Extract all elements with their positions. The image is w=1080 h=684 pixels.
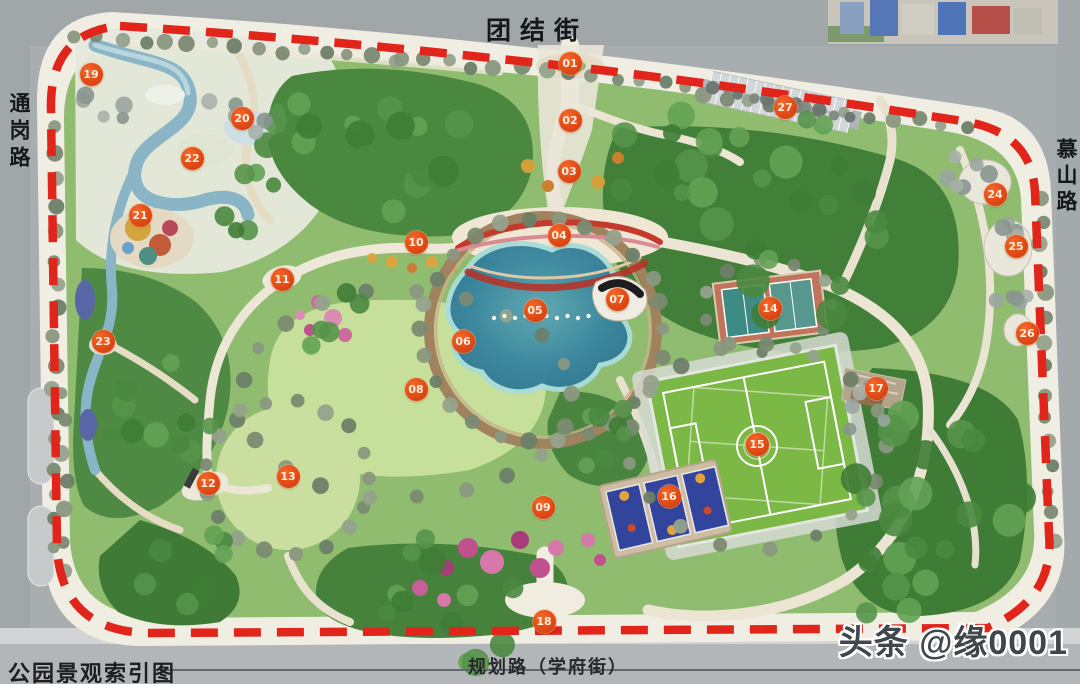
index-marker-14: 14 [759, 297, 782, 320]
index-marker-21: 21 [129, 204, 152, 227]
street-label-tonggang: 通岗路 [4, 92, 34, 173]
index-markers: 0102030405060708091011121314151617181920… [0, 0, 1080, 684]
index-marker-08: 08 [405, 378, 428, 401]
index-marker-04: 04 [548, 224, 571, 247]
index-marker-18: 18 [533, 610, 556, 633]
index-marker-15: 15 [746, 433, 769, 456]
index-marker-17: 17 [865, 377, 888, 400]
index-marker-07: 07 [606, 288, 629, 311]
street-label-mushan: 慕山路 [1051, 138, 1080, 216]
index-marker-19: 19 [80, 63, 103, 86]
index-marker-27: 27 [774, 96, 797, 119]
index-marker-25: 25 [1005, 235, 1028, 258]
index-marker-26: 26 [1016, 322, 1039, 345]
index-marker-10: 10 [405, 231, 428, 254]
index-marker-03: 03 [558, 160, 581, 183]
index-marker-06: 06 [452, 330, 475, 353]
index-marker-23: 23 [92, 330, 115, 353]
index-marker-12: 12 [197, 472, 220, 495]
street-label-guihua: 规划路（学府街） [468, 653, 628, 679]
index-marker-24: 24 [984, 183, 1007, 206]
watermark-handle: @缘0001 [919, 624, 1068, 662]
park-master-plan: 0102030405060708091011121314151617181920… [0, 0, 1080, 684]
index-marker-20: 20 [231, 107, 254, 130]
index-marker-01: 01 [559, 52, 582, 75]
index-marker-02: 02 [559, 109, 582, 132]
index-marker-11: 11 [271, 268, 294, 291]
street-label-tuanjie: 团结街 [486, 11, 588, 47]
map-title: 公园景观索引图 [8, 656, 176, 684]
index-marker-13: 13 [277, 465, 300, 488]
watermark: 头条 @缘0001 [839, 615, 1068, 664]
index-marker-05: 05 [524, 299, 547, 322]
watermark-brand: 头条 [839, 624, 909, 662]
index-marker-22: 22 [181, 147, 204, 170]
index-marker-09: 09 [532, 496, 555, 519]
index-marker-16: 16 [658, 485, 681, 508]
